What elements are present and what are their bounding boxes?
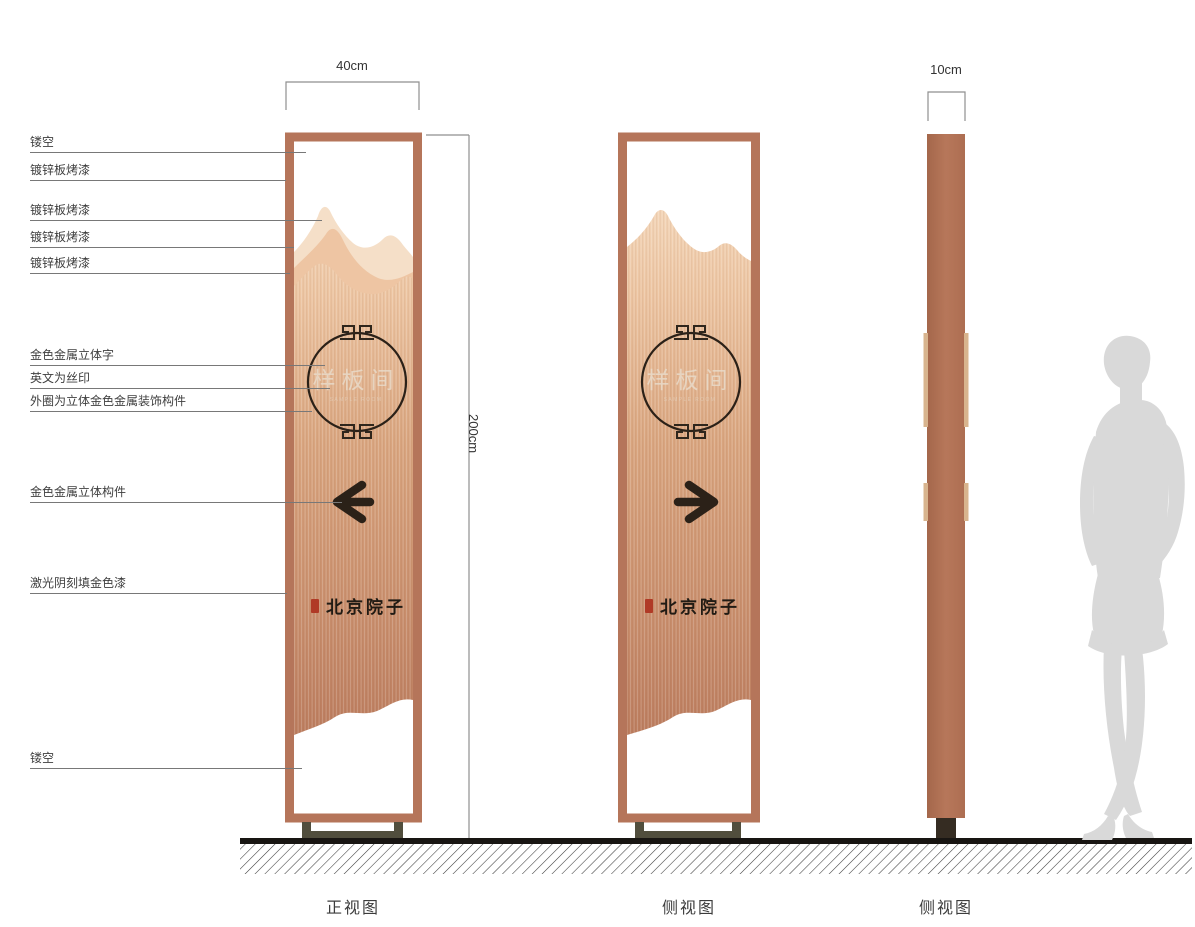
view-label-front: 正视图 xyxy=(293,894,413,918)
dimension-front-width: 40cm xyxy=(302,58,402,73)
annotation-label: 镀锌板烤漆 xyxy=(30,203,90,217)
panel-front-base xyxy=(302,822,403,838)
annotation-label: 镂空 xyxy=(30,135,54,149)
annotation-english-silkscreen: 英文为丝印 xyxy=(30,371,330,389)
annotation-laser-engraved-gold: 激光阴刻填金色漆 xyxy=(30,576,287,594)
room-name-english-text: SAMPLE ROOM xyxy=(330,397,383,403)
annotation-outer-ring-component: 外圈为立体金色金属装饰构件 xyxy=(30,394,312,412)
annotation-label: 镂空 xyxy=(30,751,54,765)
view-label-profile: 侧视图 xyxy=(886,894,1006,918)
seal-icon xyxy=(645,599,653,613)
annotation-label: 外圈为立体金色金属装饰构件 xyxy=(30,394,186,408)
room-name-text: 样板间 xyxy=(647,367,734,393)
annotation-galvanized-4: 镀锌板烤漆 xyxy=(30,256,290,274)
brand-logo-text: 北京院子 xyxy=(660,597,740,618)
annotation-label: 镀锌板烤漆 xyxy=(30,230,90,244)
annotation-galvanized-1: 镀锌板烤漆 xyxy=(30,163,286,181)
panel-front-interior: 样板间 SAMPLE ROOM 北京院子 xyxy=(294,207,413,735)
annotation-label: 金色金属立体构件 xyxy=(30,485,126,499)
ground xyxy=(240,838,1192,874)
brand-logo-front: 北京院子 xyxy=(311,597,406,618)
signage-drawing-sheet: 样板间 SAMPLE ROOM 北京院子 样板间 SAMPLE ROOM 北京院… xyxy=(0,0,1195,927)
annotation-label: 激光阴刻填金色漆 xyxy=(30,576,126,590)
dimension-side-width: 10cm xyxy=(896,62,996,77)
seal-icon xyxy=(311,599,319,613)
ground-line xyxy=(240,838,1192,844)
annotation-hollow-top: 镂空 xyxy=(30,135,306,153)
annotation-label: 金色金属立体字 xyxy=(30,348,114,362)
brand-logo-side: 北京院子 xyxy=(645,597,740,618)
annotation-label: 镀锌板烤漆 xyxy=(30,256,90,270)
panel-side-interior: 样板间 SAMPLE ROOM 北京院子 xyxy=(627,210,751,735)
panel-side-base xyxy=(635,822,741,838)
annotation-galvanized-3: 镀锌板烤漆 xyxy=(30,230,294,248)
panel-profile-view xyxy=(924,134,969,838)
dim-bracket-40cm xyxy=(286,82,419,110)
annotation-label: 英文为丝印 xyxy=(30,371,90,385)
panel-body-brush-texture xyxy=(627,210,751,735)
view-label-side: 侧视图 xyxy=(629,894,749,918)
ground-hatch xyxy=(240,844,1192,874)
dimension-height: 200cm xyxy=(466,414,481,453)
annotation-gold-metal-component: 金色金属立体构件 xyxy=(30,485,342,503)
profile-bar xyxy=(927,134,965,818)
human-scale-silhouette xyxy=(1080,336,1185,840)
brand-logo-text: 北京院子 xyxy=(326,597,406,618)
room-name-english-text: SAMPLE ROOM xyxy=(664,397,717,403)
dim-line-200cm xyxy=(426,135,469,838)
dim-bracket-10cm xyxy=(928,92,965,121)
annotation-label: 镀锌板烤漆 xyxy=(30,163,90,177)
annotation-hollow-bottom: 镂空 xyxy=(30,751,302,769)
annotation-gold-metal-letters: 金色金属立体字 xyxy=(30,348,325,366)
profile-foot xyxy=(936,818,956,838)
annotation-galvanized-2: 镀锌板烤漆 xyxy=(30,203,322,221)
